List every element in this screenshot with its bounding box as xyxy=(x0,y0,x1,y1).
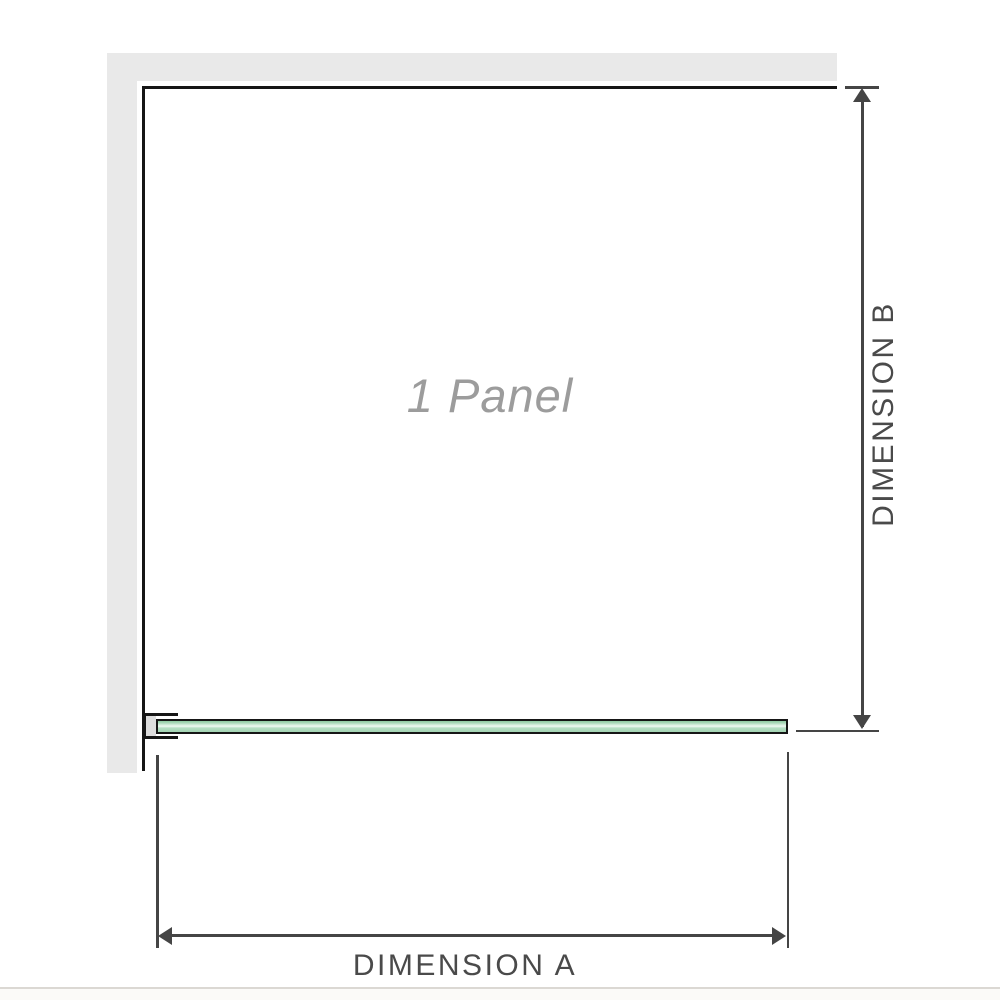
dimension-a-right-extension-line xyxy=(787,752,790,948)
wall-inner-edge-top xyxy=(142,86,837,89)
panel-count-label: 1 Panel xyxy=(143,368,837,423)
arrow-left-icon xyxy=(158,927,172,945)
dimension-b-bottom-tick xyxy=(796,730,879,733)
wall-left xyxy=(107,53,137,773)
bracket-wall-plate xyxy=(146,716,156,736)
dimension-a-label: DIMENSION A xyxy=(150,949,780,983)
product-dimension-diagram: 1 Panel DIMENSION B DIMENSION A xyxy=(0,0,1000,1000)
dimension-b-label: DIMENSION B xyxy=(867,301,901,527)
arrow-down-icon xyxy=(853,715,871,729)
dimension-a-left-extension-line xyxy=(156,755,159,948)
wall-inner-edge-left xyxy=(142,86,145,771)
glass-panel xyxy=(156,719,788,734)
arrow-right-icon xyxy=(772,927,786,945)
page-below-area xyxy=(0,989,1000,1000)
wall-top xyxy=(107,53,837,81)
dimension-a-line xyxy=(164,934,780,937)
dimension-b-line xyxy=(861,91,864,727)
arrow-up-icon xyxy=(853,88,871,102)
